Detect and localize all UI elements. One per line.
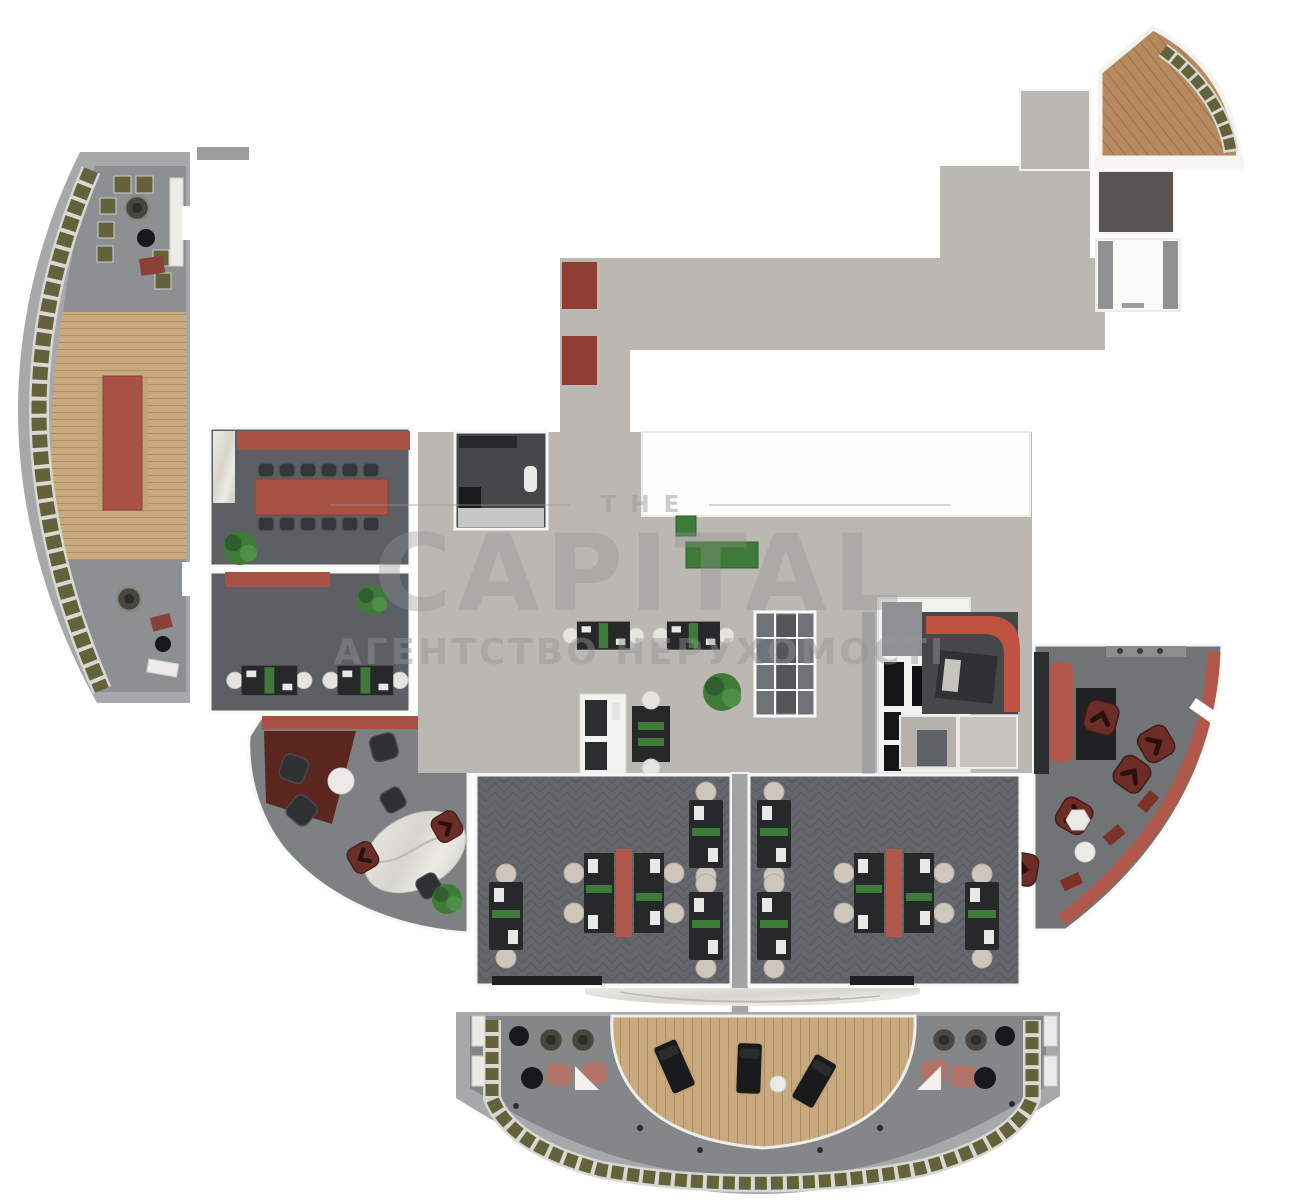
bench: [472, 1016, 485, 1046]
bottom-terrace: [456, 1012, 1060, 1194]
cafe-booth: [922, 612, 1020, 714]
upper-room: [1020, 90, 1090, 170]
coffee-table: [995, 1026, 1015, 1046]
door-mark: [1122, 303, 1144, 308]
picnic-table: [97, 376, 148, 510]
small-office: [210, 572, 410, 712]
hanging-chair: [125, 196, 149, 220]
red-accent-wall: [225, 572, 330, 587]
wicker-chair: [950, 1064, 978, 1089]
bench: [1044, 1056, 1057, 1086]
side-table: [770, 1076, 786, 1092]
entrance-door: [197, 147, 249, 160]
wc-door: [884, 662, 904, 706]
round-table: [1075, 842, 1095, 862]
coffee-table: [521, 1067, 543, 1089]
restroom: [455, 432, 547, 529]
media-wall: [1034, 652, 1049, 774]
red-accent-wall: [237, 431, 410, 450]
corridor-horizontal: [560, 258, 1105, 350]
dark-room: [1098, 171, 1174, 233]
palm-plant: [703, 673, 741, 711]
coffee-table: [974, 1067, 996, 1089]
corridor-upper-block: [940, 166, 1090, 262]
round-table: [328, 768, 354, 794]
hanging-chair: [571, 1028, 595, 1052]
right-lounge: [1003, 645, 1222, 930]
shower: [459, 487, 481, 509]
vanity-counter: [459, 436, 517, 448]
plant: [432, 884, 462, 914]
hanging-chair: [539, 1028, 563, 1052]
red-cabinet: [562, 336, 597, 385]
empty-white-room: [642, 432, 1030, 516]
kitchen: [900, 716, 1017, 768]
wicker-chair: [545, 1062, 574, 1087]
floorplan-render: [0, 0, 1297, 1200]
open-office-left: [476, 775, 731, 985]
heater-strip: [850, 976, 914, 985]
coffee-table: [137, 229, 155, 247]
booth-table: [935, 650, 998, 704]
window-gap: [266, 852, 292, 880]
red-sofa: [1049, 662, 1073, 762]
hedge-planter: [686, 542, 758, 568]
toilet: [524, 466, 537, 492]
hedge-planter: [676, 516, 696, 536]
red-cabinet: [562, 262, 597, 309]
bench: [472, 1056, 485, 1086]
marble-walkway: [585, 988, 920, 1006]
open-office-right: [749, 775, 1020, 985]
plant: [223, 531, 257, 565]
door-gap: [182, 562, 191, 596]
door-gap: [182, 206, 191, 240]
coffee-table: [509, 1026, 529, 1046]
utility-rooms: [1096, 239, 1180, 311]
sun-lounger: [735, 1042, 763, 1095]
floorplan-canvas: THE CAPITAL АГЕНТСТВО НЕРУХОМОСТІ: [0, 0, 1297, 1200]
heater-strip: [492, 976, 602, 985]
top-right-wing: [1094, 28, 1244, 311]
wc-door: [884, 745, 901, 771]
rug: [139, 256, 165, 276]
plant: [357, 585, 387, 615]
office-divider-wall: [731, 773, 749, 1015]
hanging-chair: [117, 587, 141, 611]
bench: [1044, 1016, 1057, 1046]
conference-table: [255, 479, 388, 515]
hanging-chair: [964, 1028, 988, 1052]
meeting-room: [210, 428, 410, 566]
glass-meeting-box: [755, 612, 815, 716]
wc-door: [884, 712, 901, 740]
coffee-table: [155, 636, 171, 652]
partition-wall: [862, 612, 875, 775]
hanging-chair: [932, 1028, 956, 1052]
reception-counter: [580, 694, 626, 776]
marble-accent-wall: [213, 431, 235, 503]
kitchen-island: [917, 730, 947, 766]
